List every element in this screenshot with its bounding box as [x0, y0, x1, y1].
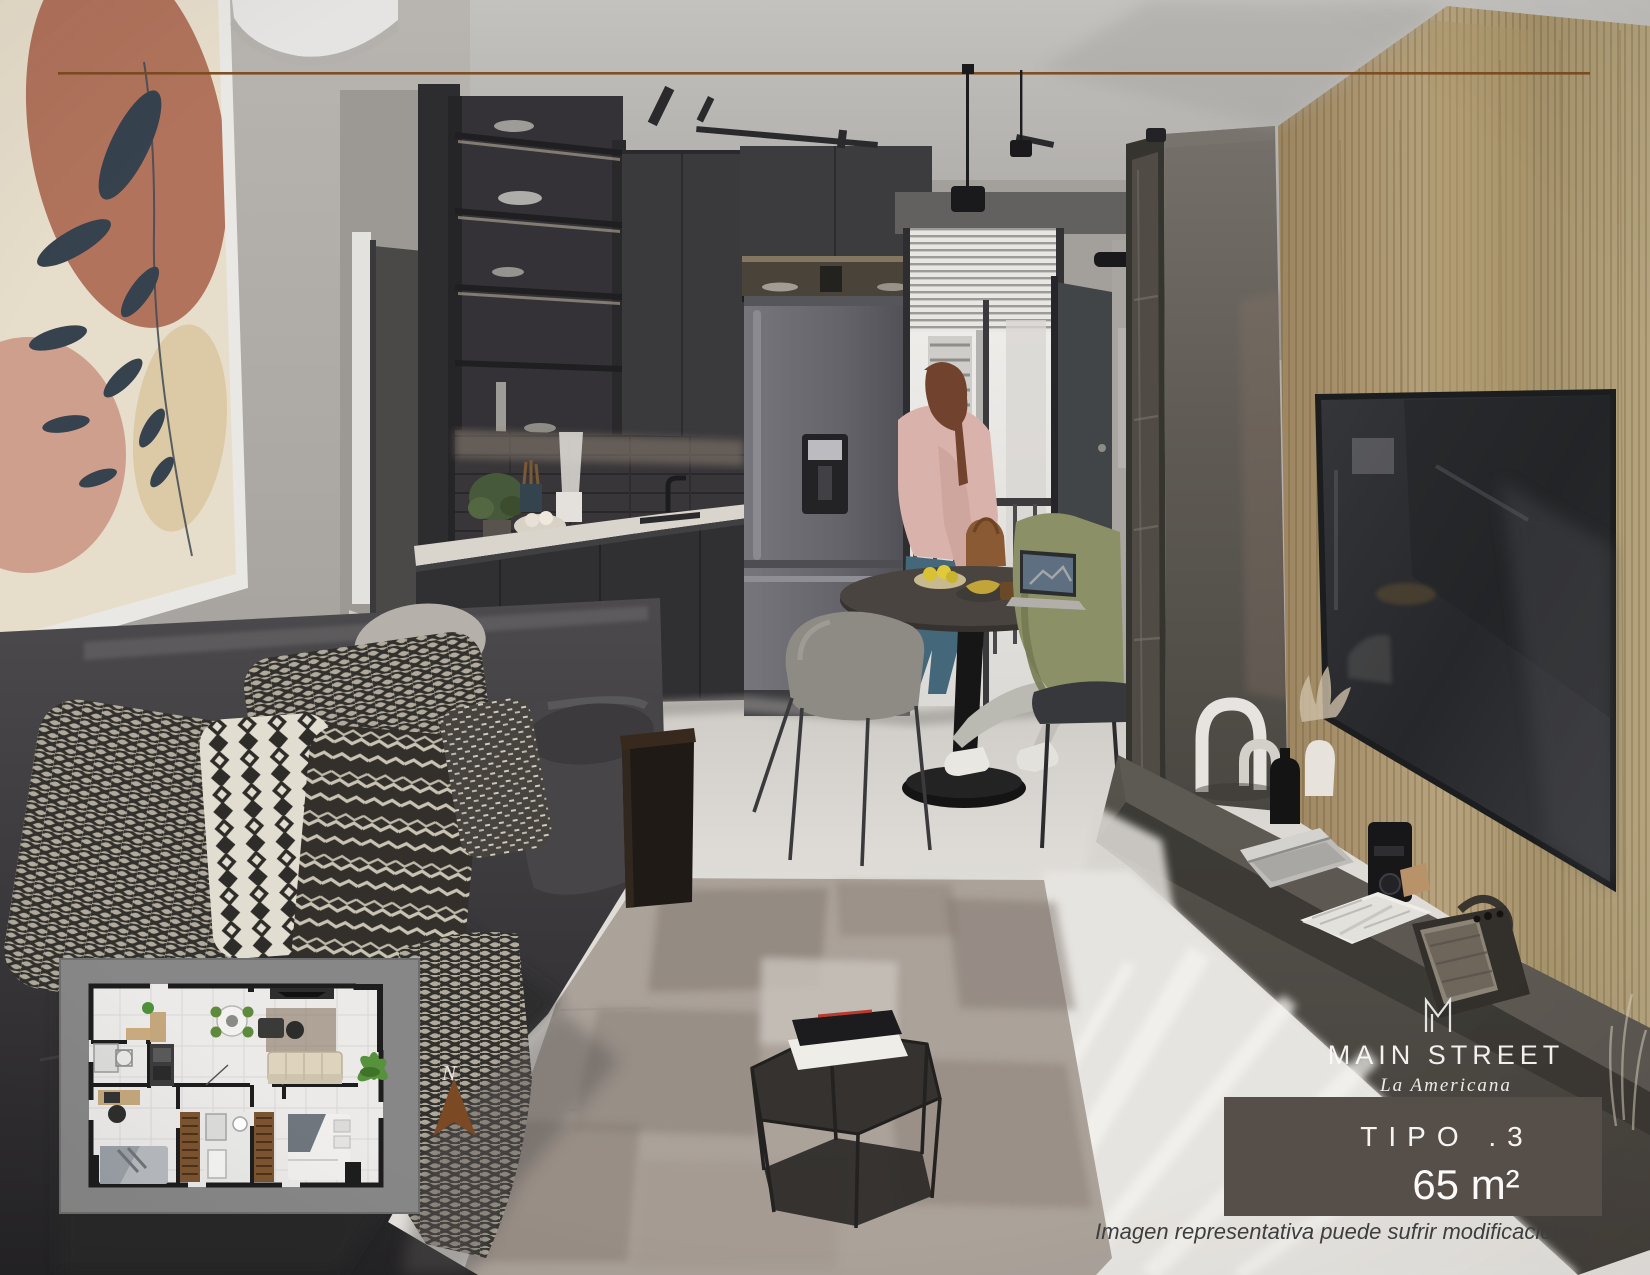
svg-text:La Americana: La Americana	[1379, 1075, 1512, 1096]
svg-text:TIPO .3: TIPO .3	[1360, 1121, 1533, 1152]
svg-text:MAIN STREET: MAIN STREET	[1328, 1040, 1565, 1070]
svg-text:65 m²: 65 m²	[1412, 1161, 1519, 1208]
svg-text:Imagen representativa puede su: Imagen representativa puede sufrir modif…	[1095, 1219, 1588, 1244]
